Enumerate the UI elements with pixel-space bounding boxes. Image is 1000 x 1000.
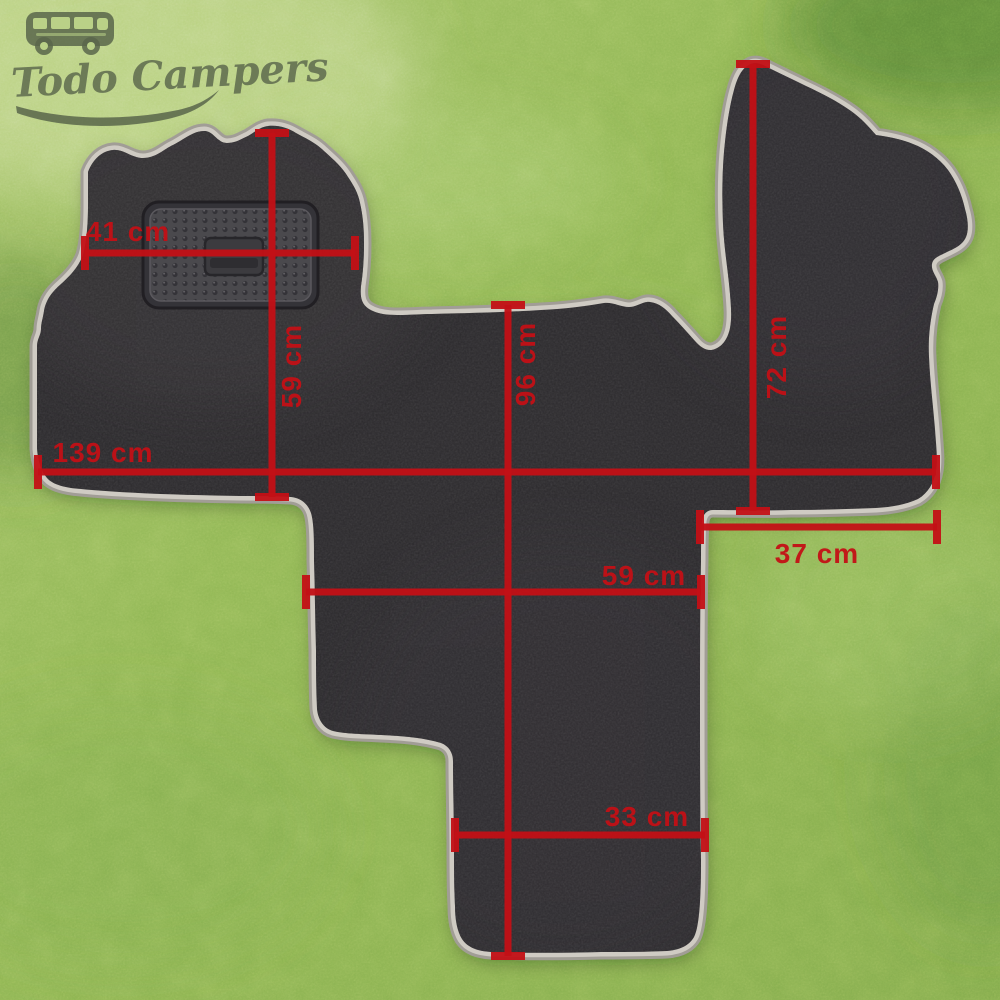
heel-pad-inner-groove [210, 258, 258, 268]
product-photo: Todo Campers 59 cm96 cm72 cm41 cm139 cm3… [0, 0, 1000, 1000]
measurement-label: 59 cm [276, 324, 307, 408]
measurement-label: 59 cm [602, 560, 686, 591]
measurement-label: 139 cm [53, 437, 154, 468]
measurement-label: 37 cm [775, 538, 859, 569]
measurement-label: 41 cm [86, 216, 170, 247]
van-wheel-front-hub [87, 42, 95, 50]
van-wheel-rear-hub [40, 42, 48, 50]
measurement-label: 72 cm [761, 315, 792, 399]
measurement-label: 96 cm [510, 322, 541, 406]
measurement-label: 33 cm [605, 801, 689, 832]
photo-canvas: Todo Campers 59 cm96 cm72 cm41 cm139 cm3… [0, 0, 1000, 1000]
